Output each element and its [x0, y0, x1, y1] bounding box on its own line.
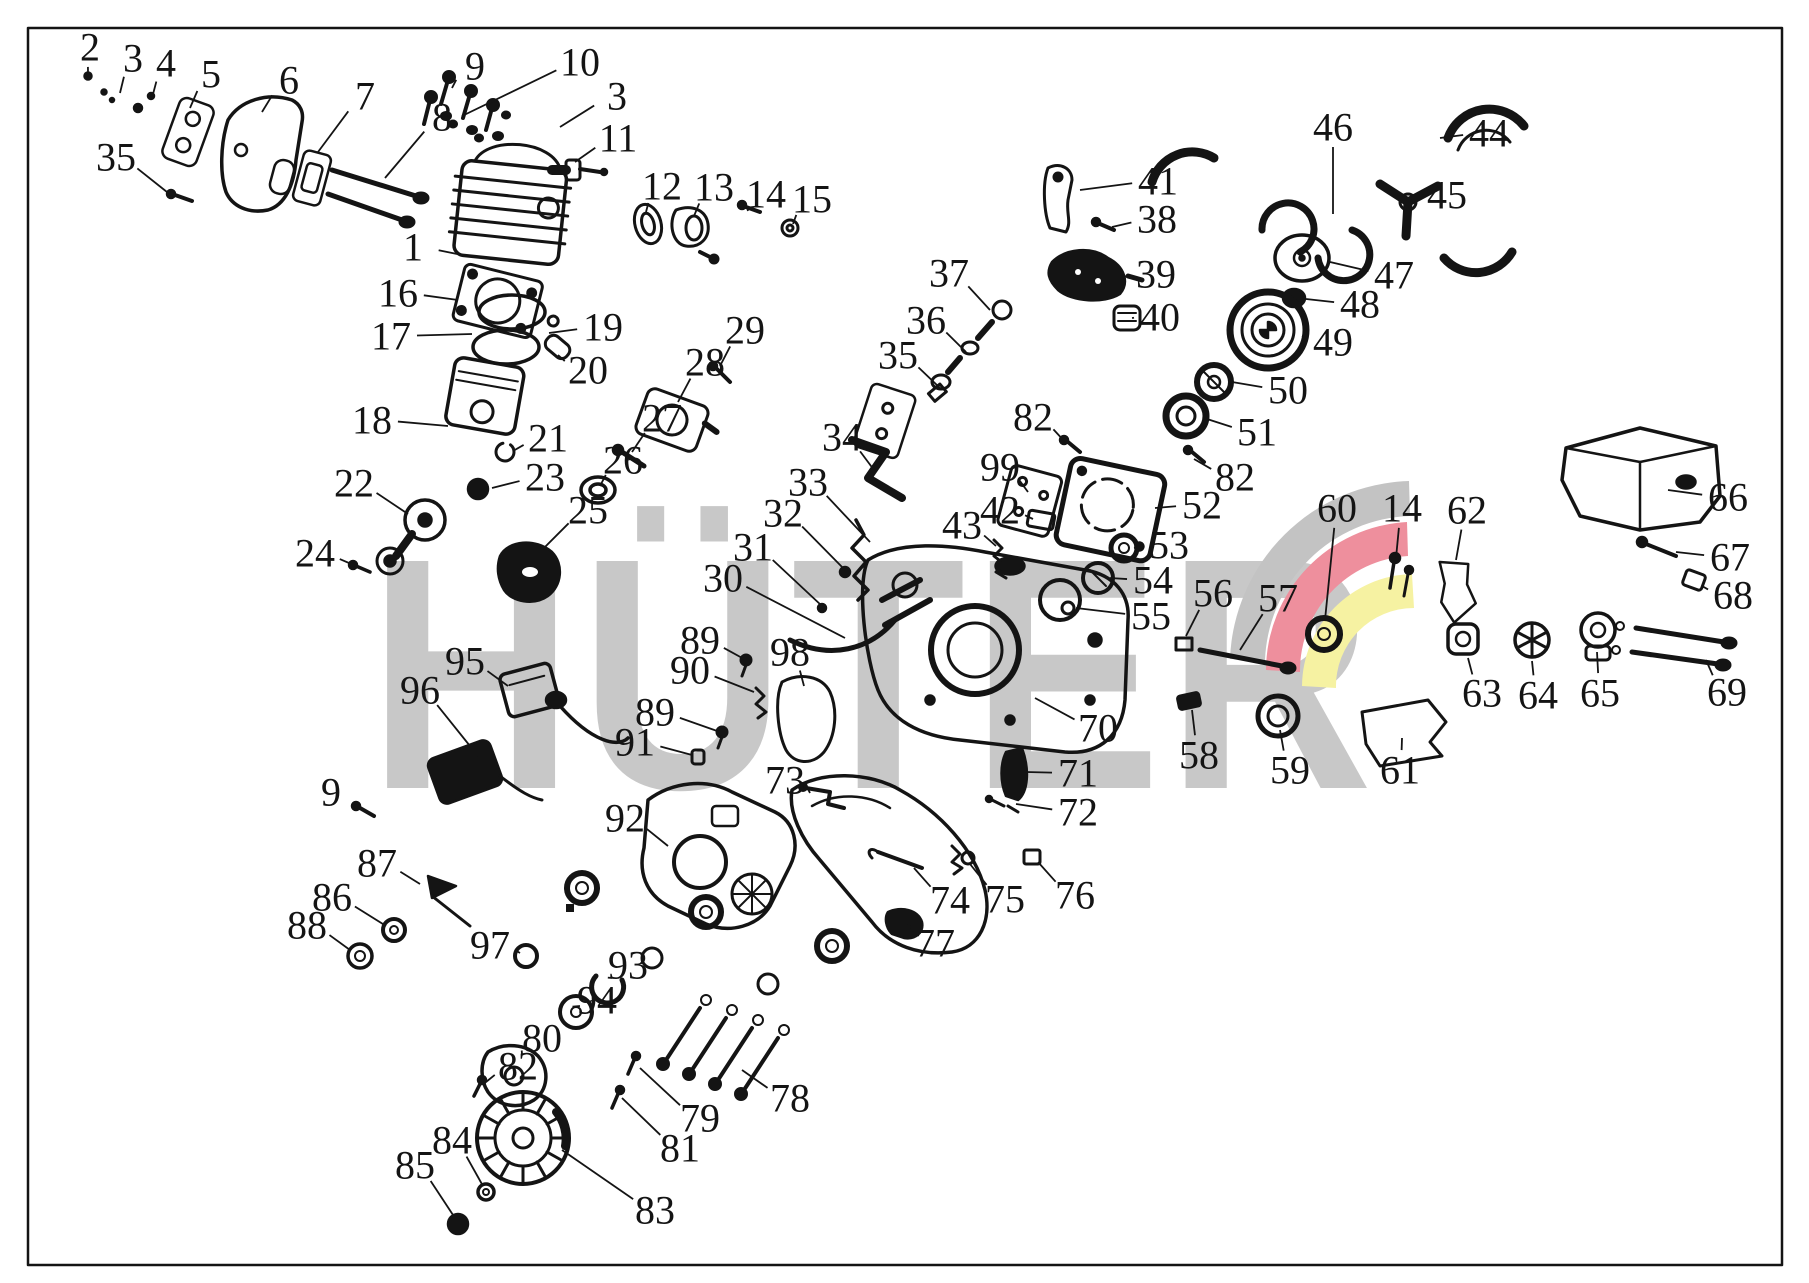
part-spark-plug-11: [552, 160, 607, 180]
callout-leader-71: [1026, 772, 1052, 773]
callout-leader-39: [1122, 276, 1130, 277]
callout-leader-3: [560, 106, 594, 127]
callout-label-28: 28: [685, 340, 725, 385]
callout-label-59: 59: [1270, 748, 1310, 793]
callout-leader-17: [417, 334, 472, 336]
callout-label-18: 18: [352, 398, 392, 443]
callout-label-64: 64: [1518, 673, 1558, 718]
part-gear-64: [1515, 623, 1549, 657]
callout-label-97: 97: [470, 923, 510, 968]
part-circlip-21: [496, 443, 514, 461]
callout-label-46: 46: [1313, 105, 1353, 150]
callout-leader-47: [1330, 262, 1369, 271]
callout-label-34: 34: [822, 415, 862, 460]
part-grommet-63: [1448, 624, 1478, 654]
part-bolts-69: [1612, 622, 1735, 669]
callout-leader-16: [424, 295, 458, 300]
callout-label-43: 43: [942, 503, 982, 548]
callout-label-77: 77: [915, 921, 955, 966]
callout-label-9: 9: [465, 44, 485, 89]
callout-label-57: 57: [1258, 576, 1298, 621]
callout-leader-67: [1676, 552, 1704, 555]
part-screw-38: [1092, 218, 1114, 230]
callout-leader-38: [1112, 223, 1131, 227]
callout-leader-19: [549, 329, 577, 333]
callout-label-20: 20: [568, 348, 608, 393]
callout-leader-51: [1207, 419, 1232, 427]
callout-leader-66: [1668, 490, 1702, 495]
callout-label-29: 29: [725, 308, 765, 353]
callout-label-69: 69: [1707, 670, 1747, 715]
callout-label-17: 17: [371, 314, 411, 359]
callout-label-68: 68: [1713, 573, 1753, 618]
callout-leader-37: [968, 286, 990, 310]
parts-diagram-page: HÜTER: [0, 0, 1809, 1283]
callout-leader-83: [562, 1150, 633, 1199]
callout-label-33: 33: [788, 460, 828, 505]
callout-label-99: 99: [980, 445, 1020, 490]
part-lever-87-rings-86-88: [348, 876, 470, 968]
callout-label-74: 74: [930, 878, 970, 923]
callout-label-14: 14: [1382, 486, 1422, 531]
callout-leader-35: [137, 168, 172, 196]
callout-label-81: 81: [660, 1126, 700, 1171]
callout-label-24: 24: [295, 531, 335, 576]
callout-label-45: 45: [1427, 173, 1467, 218]
callout-leader-53: [1134, 547, 1143, 548]
callout-leader-86: [355, 906, 386, 926]
callout-leader-87: [400, 872, 420, 884]
part-clutch-drum-49: [1230, 292, 1306, 368]
callout-label-4: 4: [156, 41, 176, 86]
callout-leader-36: [946, 332, 966, 352]
callout-label-85: 85: [395, 1143, 435, 1188]
callout-label-22: 22: [334, 461, 374, 506]
callout-leader-48: [1306, 299, 1334, 302]
callout-label-88: 88: [287, 903, 327, 948]
callout-label-1: 1: [403, 225, 423, 270]
part-bolts-8: [328, 170, 427, 226]
callout-label-73: 73: [765, 758, 805, 803]
callout-label-62: 62: [1447, 488, 1487, 533]
callout-label-95: 95: [445, 639, 485, 684]
callout-label-66: 66: [1708, 475, 1748, 520]
part-flywheel-83: [477, 1092, 569, 1184]
callout-leader-23: [492, 481, 520, 488]
callout-label-55: 55: [1131, 594, 1171, 639]
callout-label-83: 83: [635, 1188, 675, 1233]
callout-label-11: 11: [599, 116, 638, 161]
callout-label-39: 39: [1136, 252, 1176, 297]
callout-leader-88: [329, 935, 350, 950]
callout-label-52: 52: [1182, 483, 1222, 528]
part-bolt-67-clip-68: [1637, 537, 1706, 591]
callout-label-87: 87: [357, 841, 397, 886]
callout-leader-62: [1456, 530, 1461, 560]
callout-label-92: 92: [605, 796, 645, 841]
part-screws-79-81: [612, 1052, 640, 1108]
callout-label-13: 13: [694, 165, 734, 210]
part-muffler-cover-6: [222, 97, 303, 211]
part-washer-51: [1166, 396, 1206, 436]
callout-label-8: 8: [432, 95, 452, 140]
callout-leader-18: [398, 422, 448, 426]
callout-label-84: 84: [432, 1118, 472, 1163]
callout-label-90: 90: [670, 648, 710, 693]
callout-label-78: 78: [770, 1076, 810, 1121]
part-cylinder-1: [447, 138, 574, 265]
part-screw-24: [349, 561, 370, 572]
callout-leader-79: [640, 1068, 680, 1105]
callout-label-47: 47: [1374, 253, 1414, 298]
callout-label-63: 63: [1462, 671, 1502, 716]
part-gasket-62: [1436, 558, 1478, 624]
callout-label-37: 37: [929, 251, 969, 296]
callout-label-82: 82: [498, 1044, 538, 1089]
callout-label-49: 49: [1313, 320, 1353, 365]
callout-leader-41: [1080, 183, 1132, 190]
callout-label-61: 61: [1380, 748, 1420, 793]
callout-label-16: 16: [378, 271, 418, 316]
callout-leader-7: [318, 111, 348, 152]
callout-label-51: 51: [1237, 410, 1277, 455]
part-intake-boot-25: [498, 543, 560, 602]
part-bearing-50: [1197, 365, 1231, 399]
callout-label-35: 35: [96, 135, 136, 180]
callout-label-23: 23: [525, 455, 565, 500]
callout-leader-54: [1110, 578, 1127, 579]
callout-label-10: 10: [560, 40, 600, 85]
part-ring-15: [782, 220, 798, 236]
callout-label-56: 56: [1193, 571, 1233, 616]
callout-label-14: 14: [746, 172, 786, 217]
callout-label-6: 6: [279, 58, 299, 103]
callout-label-15: 15: [792, 177, 832, 222]
callout-label-50: 50: [1268, 368, 1308, 413]
callout-leader-11: [575, 148, 595, 162]
callout-label-91: 91: [615, 720, 655, 765]
callout-label-72: 72: [1058, 790, 1098, 835]
callout-label-82: 82: [1013, 395, 1053, 440]
callout-leader-74: [914, 868, 931, 887]
callout-label-70: 70: [1078, 706, 1118, 751]
callout-leader-34: [860, 451, 874, 470]
part-bracket-41: [1044, 166, 1072, 232]
callout-label-44: 44: [1469, 111, 1509, 156]
callout-label-42: 42: [980, 488, 1020, 533]
part-worm-gear-40: [1114, 306, 1140, 330]
callout-label-75: 75: [985, 877, 1025, 922]
callout-label-94: 94: [577, 978, 617, 1023]
callout-label-98: 98: [770, 630, 810, 675]
callout-label-3: 3: [123, 36, 143, 81]
callout-leader-81: [622, 1098, 660, 1135]
exploded-parts-diagram: HÜTER: [0, 0, 1809, 1283]
callout-label-40: 40: [1140, 295, 1180, 340]
part-bearing-23: [468, 479, 488, 499]
part-gasket-5: [160, 96, 216, 168]
callout-label-9: 9: [321, 770, 341, 815]
callout-label-3: 3: [607, 74, 627, 119]
callout-label-2: 2: [80, 25, 100, 70]
part-cap-65: [1581, 613, 1615, 660]
callout-label-60: 60: [1317, 486, 1357, 531]
callout-label-5: 5: [201, 52, 221, 97]
callout-label-35: 35: [878, 333, 918, 378]
callout-leader-76: [1038, 862, 1056, 882]
callout-label-7: 7: [355, 74, 375, 119]
part-piston-rings-17: [473, 295, 545, 364]
part-oring-97: [515, 945, 537, 967]
callout-label-19: 19: [583, 305, 623, 350]
callout-leader-35: [918, 367, 940, 388]
callout-leader-82: [486, 1075, 495, 1082]
callout-label-58: 58: [1179, 733, 1219, 778]
part-piston-18: [444, 356, 525, 435]
callout-label-27: 27: [642, 396, 682, 441]
part-fuel-tank-66: [1562, 428, 1720, 530]
small-fasteners-top-left: [85, 73, 155, 113]
callout-leader-50: [1232, 382, 1262, 387]
callout-label-12: 12: [642, 164, 682, 209]
callout-label-25: 25: [568, 488, 608, 533]
callout-label-38: 38: [1137, 197, 1177, 242]
callout-label-76: 76: [1055, 873, 1095, 918]
callout-label-96: 96: [400, 668, 440, 713]
callout-leader-8: [385, 132, 424, 178]
callout-label-65: 65: [1580, 671, 1620, 716]
part-washer-84-nut-85: [448, 1184, 494, 1234]
